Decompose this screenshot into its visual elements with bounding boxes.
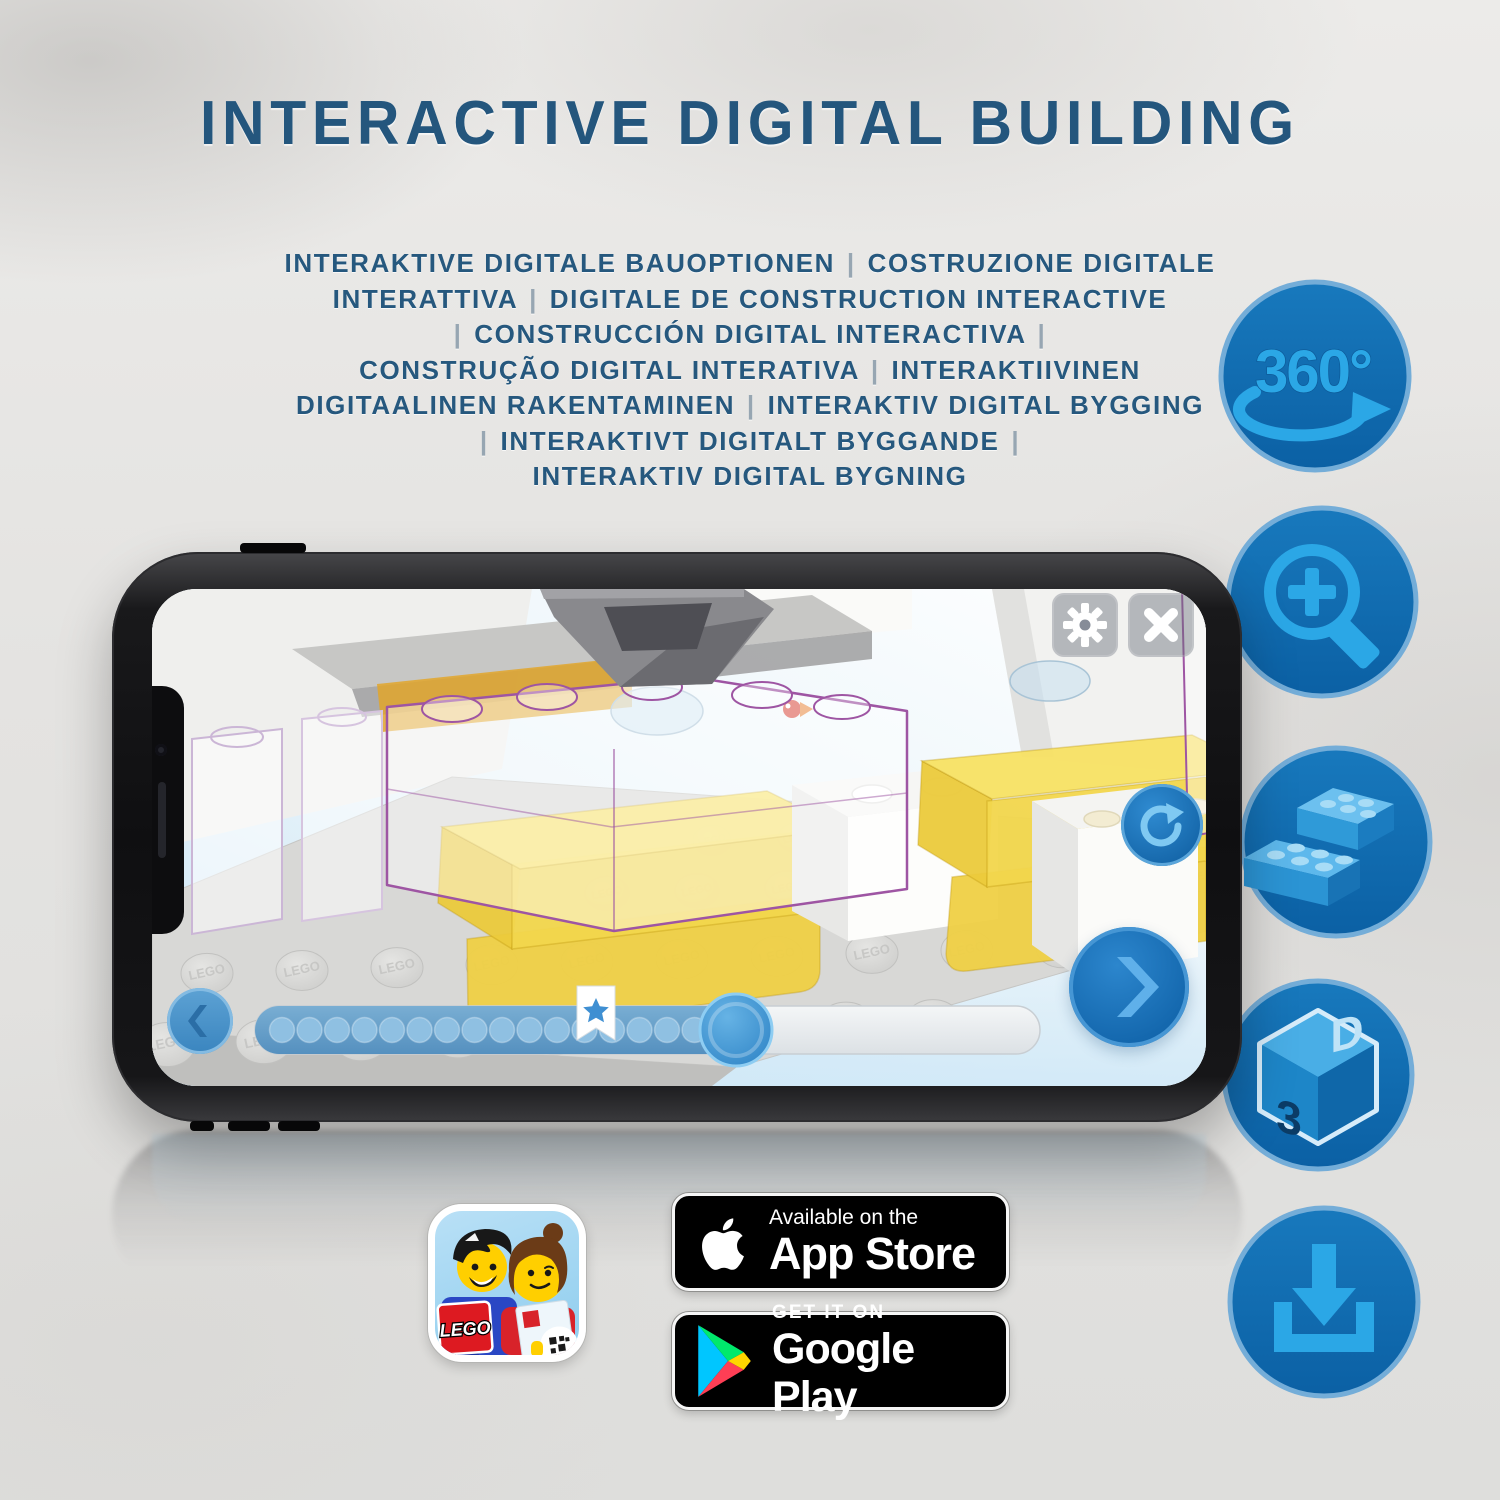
phone-mockup: LEGOLEGOLEGOLEGOLEGOLEGOLEGOLEGOLEGOLEGO… <box>112 552 1242 1122</box>
front-camera <box>155 744 167 756</box>
subtitle-block: INTERAKTIVE DIGITALE BAUOPTIONEN | COSTR… <box>220 246 1280 495</box>
clear-dome-piece <box>1010 661 1090 701</box>
subtitle-line: INTERAKTIV DIGITAL BYGNING <box>220 459 1280 495</box>
app-store-badge[interactable]: Available on the App Store <box>672 1193 1009 1291</box>
header: INTERACTIVE DIGITAL BUILDING <box>0 88 1500 159</box>
brick-stack-icon <box>1236 742 1436 942</box>
step-dots <box>270 1018 735 1043</box>
zoom-in-icon <box>1222 502 1422 702</box>
phone-volume-down-button <box>278 1121 320 1131</box>
360-rotation-icon: 360° <box>1215 276 1415 476</box>
chevron-left-icon <box>180 1001 220 1041</box>
next-step-button[interactable] <box>1069 927 1189 1047</box>
earpiece-speaker <box>158 782 166 858</box>
google-play-icon <box>693 1320 756 1402</box>
girl-minifigure <box>501 1223 579 1355</box>
subtitle-line: INTERAKTIVE DIGITALE BAUOPTIONEN | COSTR… <box>220 246 1280 282</box>
phone-mute-switch <box>190 1121 214 1131</box>
subtitle-line: | CONSTRUCCIÓN DIGITAL INTERACTIVA | <box>220 317 1280 353</box>
app-store-name: App Store <box>769 1230 975 1278</box>
rotate-icon <box>1136 799 1188 851</box>
google-play-name: Google Play <box>772 1325 1006 1421</box>
download-icon <box>1224 1202 1424 1402</box>
feature-360-badge: 360° <box>1215 276 1415 476</box>
google-play-tagline: GET IT ON <box>772 1301 1006 1325</box>
ghost-brick-highlight <box>387 674 907 931</box>
instruction-sheet <box>515 1299 579 1355</box>
app-screen: LEGOLEGOLEGOLEGOLEGOLEGOLEGOLEGOLEGOLEGO… <box>152 589 1206 1086</box>
phone-power-button <box>240 543 306 553</box>
settings-button[interactable] <box>1052 593 1118 657</box>
feature-download-badge <box>1224 1202 1424 1402</box>
phone-volume-up-button <box>228 1121 270 1131</box>
lego-app-artwork: LEGO <box>435 1211 579 1355</box>
app-store-tagline: Available on the <box>769 1206 975 1230</box>
close-button[interactable] <box>1128 593 1194 657</box>
phone-notch <box>152 686 184 934</box>
gear-icon <box>1061 601 1109 649</box>
subtitle-line: | INTERAKTIVT DIGITALT BYGGANDE | <box>220 424 1280 460</box>
rotate-view-button[interactable] <box>1121 784 1203 866</box>
svg-text:LEGO: LEGO <box>439 1317 491 1341</box>
chevron-right-icon <box>1093 951 1165 1023</box>
feature-zoom-badge <box>1222 502 1422 702</box>
subtitle-line: DIGITAALINEN RAKENTAMINEN | INTERAKTIV D… <box>220 388 1280 424</box>
previous-step-button[interactable] <box>167 988 233 1054</box>
google-play-badge[interactable]: GET IT ON Google Play <box>672 1312 1009 1410</box>
svg-text:D: D <box>1330 1003 1363 1062</box>
lego-building-instructions-app-icon[interactable]: LEGO <box>428 1204 586 1362</box>
feature-bricks-badge <box>1236 742 1436 942</box>
apple-icon <box>697 1212 749 1272</box>
svg-text:360°: 360° <box>1255 338 1371 405</box>
subtitle-line: INTERATTIVA | DIGITALE DE CONSTRUCTION I… <box>220 282 1280 318</box>
close-icon <box>1138 602 1184 648</box>
build-progress-slider[interactable] <box>247 978 1047 1082</box>
3d-view-icon: 3 D <box>1218 975 1418 1175</box>
svg-text:3: 3 <box>1276 1089 1302 1147</box>
lego-logo: LEGO <box>437 1301 492 1355</box>
page-title: INTERACTIVE DIGITAL BUILDING <box>200 88 1300 159</box>
subtitle-line: CONSTRUÇÃO DIGITAL INTERATIVA | INTERAKT… <box>220 353 1280 389</box>
poster: INTERACTIVE DIGITAL BUILDING INTERAKTIVE… <box>0 0 1500 1500</box>
feature-3d-badge: 3 D <box>1218 975 1418 1175</box>
